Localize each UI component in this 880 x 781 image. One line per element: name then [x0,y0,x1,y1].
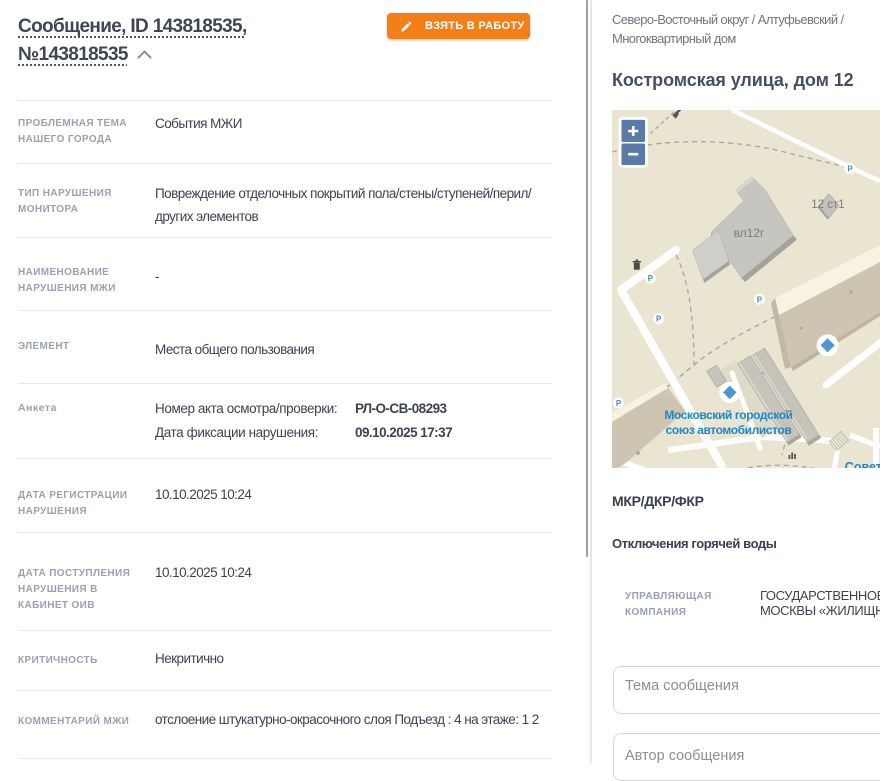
svg-text:P: P [616,399,622,408]
svg-text:союз автомобилистов: союз автомобилистов [666,423,792,437]
svg-text:12 ст1: 12 ст1 [811,199,844,211]
svg-text:P: P [656,315,662,324]
svg-text:Совет в: Совет в [845,460,880,468]
svg-text:P: P [757,295,763,304]
svg-text:P: P [847,165,853,174]
svg-text:P: P [648,274,654,283]
svg-text:вл12г: вл12г [734,226,765,240]
svg-text:Московский городской: Московский городской [664,408,792,422]
